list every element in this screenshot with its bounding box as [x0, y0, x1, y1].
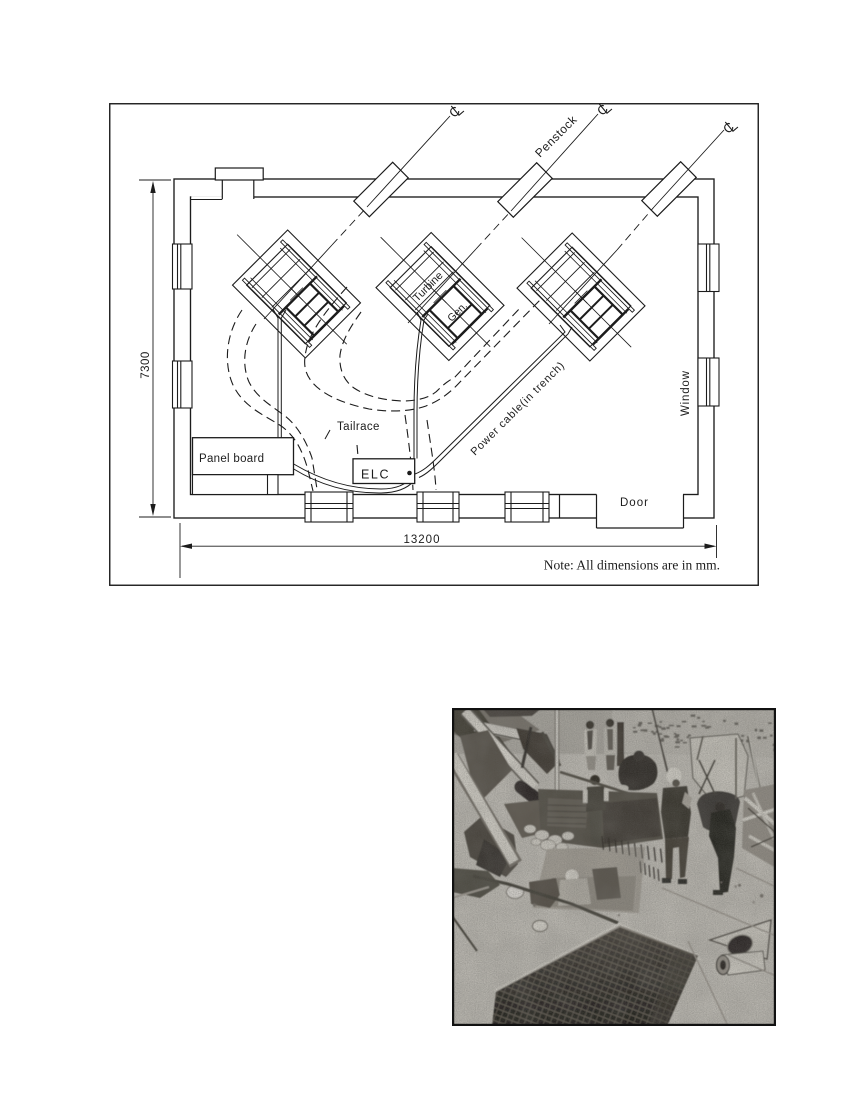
svg-text:13200: 13200 [404, 534, 441, 546]
svg-text:Note: All dimensions are in mm: Note: All dimensions are in mm. [544, 558, 720, 573]
svg-text:Window: Window [680, 370, 692, 416]
svg-text:7300: 7300 [140, 351, 152, 379]
svg-text:ELC: ELC [361, 468, 390, 482]
svg-text:Door: Door [620, 497, 649, 509]
svg-text:Panel board: Panel board [199, 453, 264, 465]
svg-text:Tailrace: Tailrace [337, 421, 380, 433]
